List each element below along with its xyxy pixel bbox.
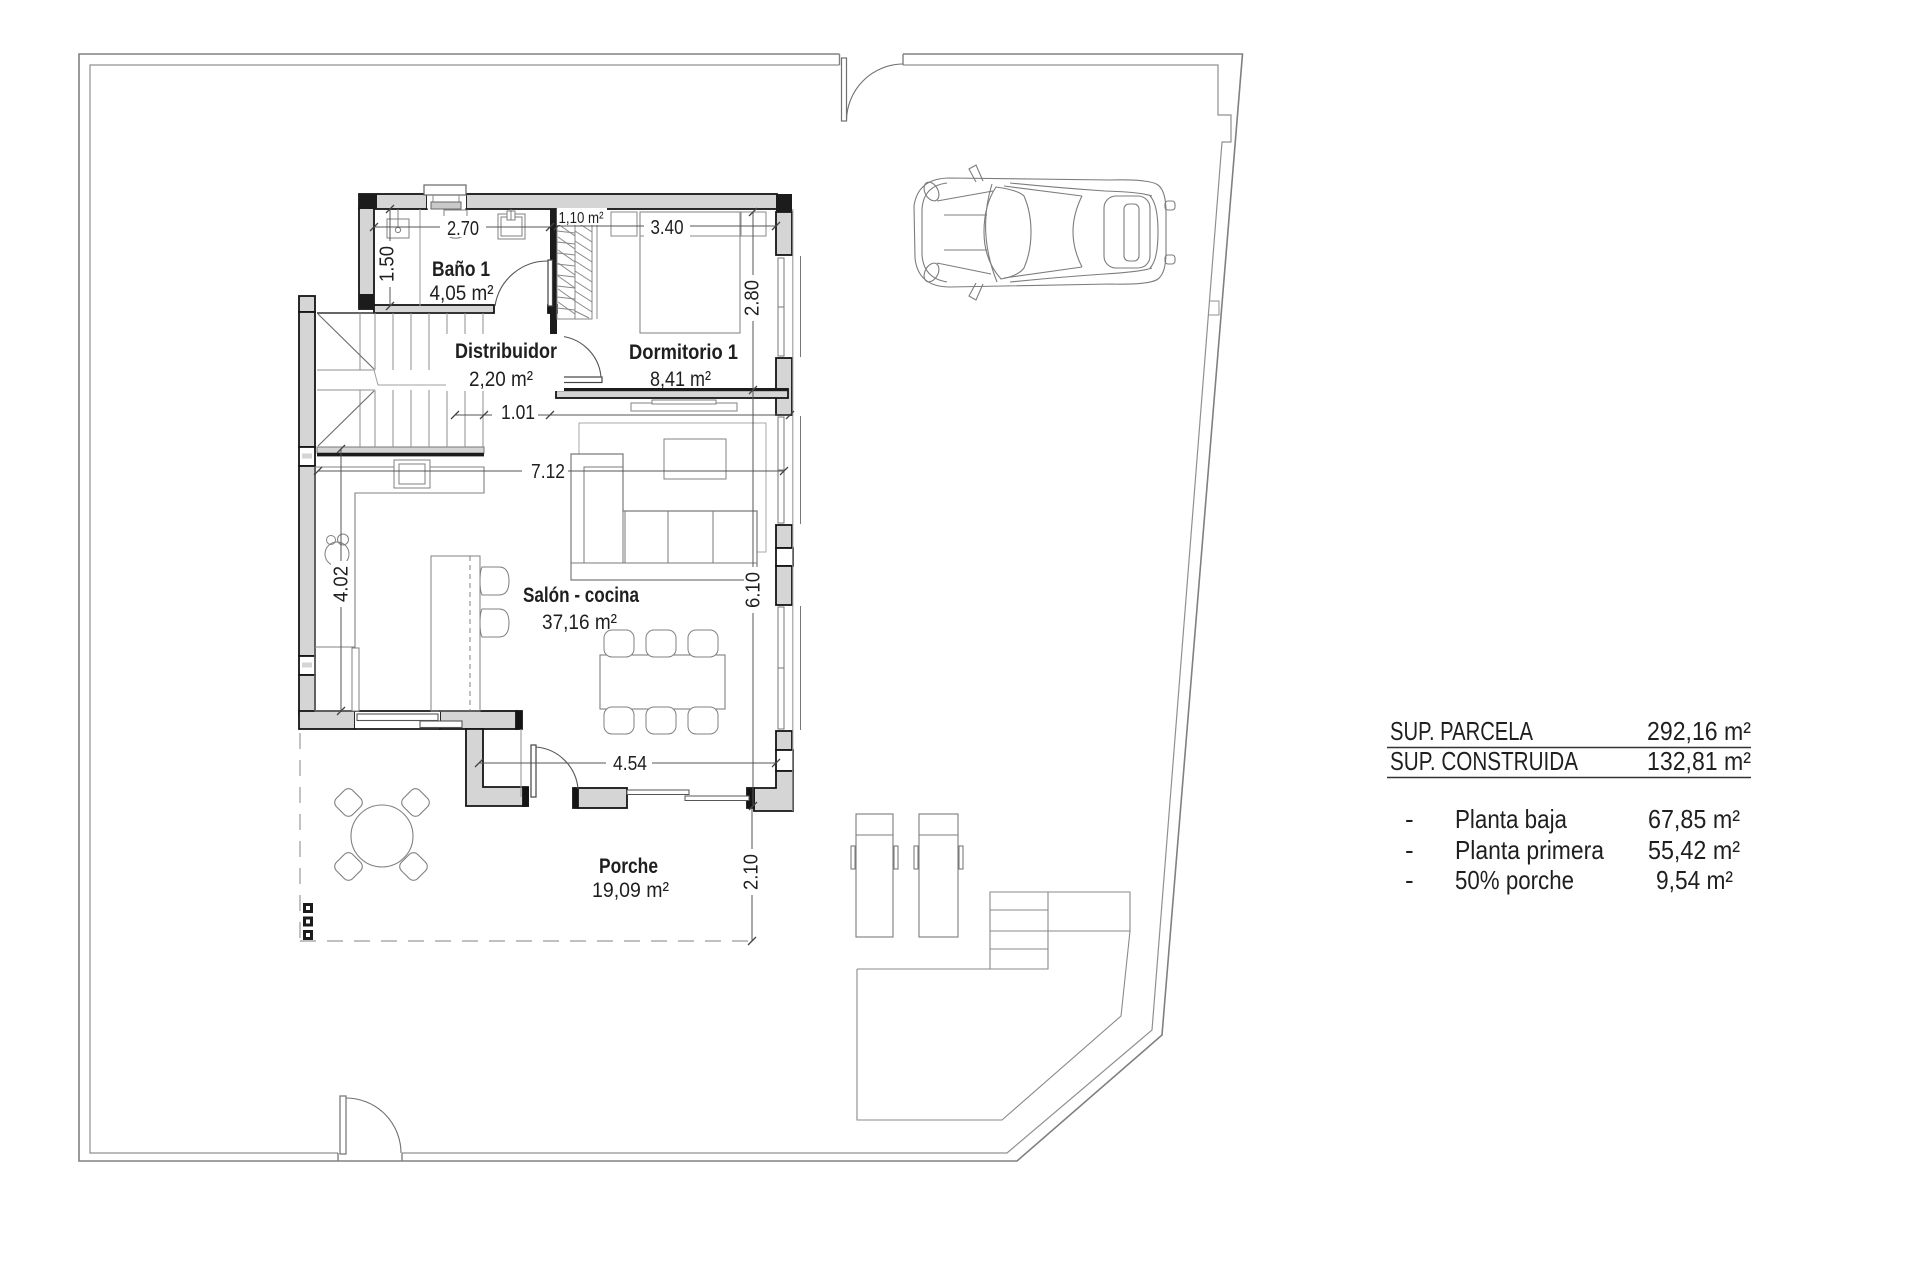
svg-text:50% porche: 50% porche (1455, 865, 1574, 895)
svg-text:292,16 m²: 292,16 m² (1647, 716, 1751, 746)
svg-text:55,42 m²: 55,42 m² (1648, 835, 1740, 865)
svg-text:Porche: Porche (599, 855, 658, 878)
svg-text:7.12: 7.12 (531, 461, 565, 483)
svg-text:4.54: 4.54 (613, 753, 647, 775)
svg-text:3.40: 3.40 (651, 217, 684, 239)
svg-text:4,05 m²: 4,05 m² (430, 282, 494, 305)
svg-text:1.50: 1.50 (376, 246, 398, 282)
svg-text:19,09 m²: 19,09 m² (592, 879, 669, 902)
svg-text:2.10: 2.10 (740, 854, 762, 890)
svg-text:Distribuidor: Distribuidor (455, 340, 557, 363)
svg-text:2,20 m²: 2,20 m² (469, 368, 533, 391)
svg-text:SUP. PARCELA: SUP. PARCELA (1390, 716, 1534, 746)
svg-text:4.02: 4.02 (330, 566, 352, 602)
svg-text:1.01: 1.01 (501, 402, 535, 424)
svg-text:SUP. CONSTRUIDA: SUP. CONSTRUIDA (1390, 746, 1579, 776)
svg-text:Planta primera: Planta primera (1455, 835, 1604, 865)
svg-text:6.10: 6.10 (742, 572, 764, 608)
svg-text:2.80: 2.80 (741, 280, 763, 316)
svg-text:Planta baja: Planta baja (1455, 804, 1567, 834)
svg-text:Baño 1: Baño 1 (432, 258, 490, 281)
svg-text:Salón - cocina: Salón - cocina (523, 584, 639, 607)
svg-text:9,54 m²: 9,54 m² (1656, 865, 1733, 895)
svg-text:1,10 m²: 1,10 m² (559, 210, 605, 227)
svg-text:37,16 m²: 37,16 m² (542, 611, 617, 634)
svg-text:67,85 m²: 67,85 m² (1648, 804, 1740, 834)
svg-text:2.70: 2.70 (447, 218, 479, 240)
svg-text:8,41 m²: 8,41 m² (650, 368, 711, 391)
svg-text:Dormitorio 1: Dormitorio 1 (629, 341, 738, 364)
svg-text:-: - (1405, 835, 1414, 865)
svg-text:-: - (1405, 804, 1414, 834)
svg-text:-: - (1405, 865, 1414, 895)
svg-text:132,81 m²: 132,81 m² (1647, 746, 1751, 776)
